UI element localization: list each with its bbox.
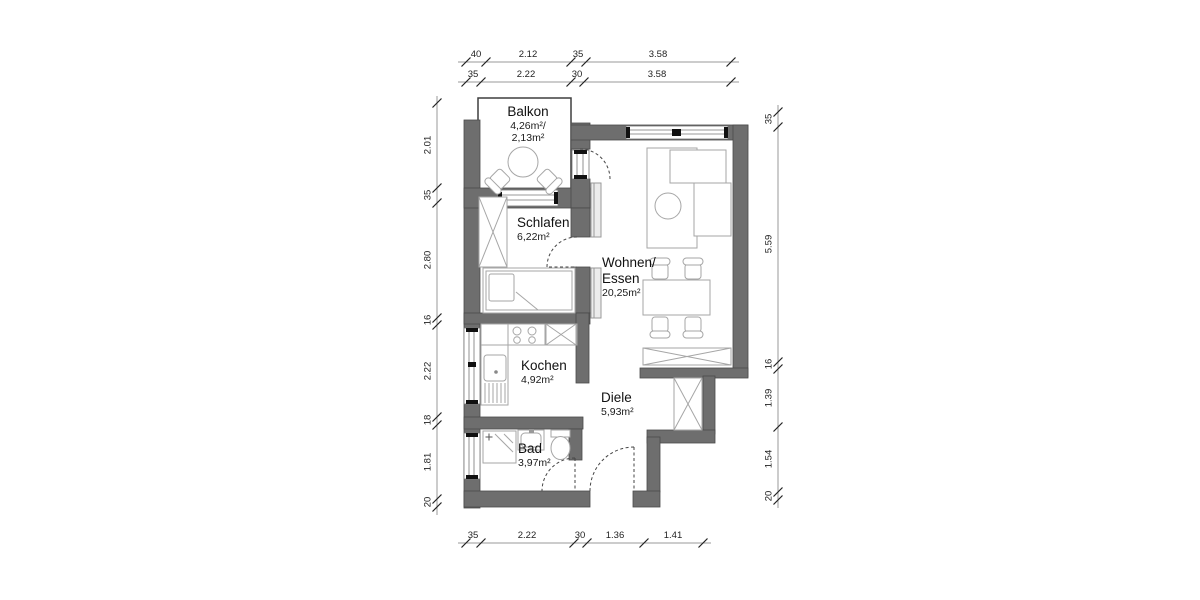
shower-symbol <box>483 431 516 463</box>
room-area: 3,97m² <box>518 457 551 469</box>
room-label-balkon: Balkon 4,26m²/ 2,13m² <box>478 104 578 145</box>
dim-label: 5.59 <box>764 235 775 254</box>
dining-chair-symbol <box>683 317 703 338</box>
dim-label: 1.54 <box>764 450 775 469</box>
dim-label: 35 <box>423 190 434 201</box>
dim-label: 18 <box>423 415 434 426</box>
balcony-table-symbol <box>508 147 538 177</box>
wall-niche-right <box>703 376 715 434</box>
window-kochen <box>464 328 480 404</box>
coffee-table-symbol <box>655 193 681 219</box>
shelf-strip <box>591 183 601 318</box>
stove-symbol <box>508 324 545 345</box>
room-area: 20,25m² <box>602 287 656 299</box>
room-name: Balkon <box>478 104 578 120</box>
dim-label: 20 <box>764 491 775 502</box>
wardrobe-diele-symbol <box>674 378 702 430</box>
wall-bottom-left <box>464 491 590 507</box>
wc-symbol <box>551 430 570 460</box>
balcony-door-glass <box>572 150 589 179</box>
dim-label: 35 <box>468 530 479 541</box>
room-area: 6,22m² <box>517 231 570 243</box>
fridge-symbol <box>546 324 576 345</box>
room-label-wohnen-essen: Wohnen/ Essen 20,25m² <box>602 255 656 299</box>
wall-kochen-right <box>576 313 589 383</box>
room-name: Bad <box>518 441 551 457</box>
wall-kochen-bad <box>464 417 583 429</box>
dim-label: 16 <box>764 359 775 370</box>
room-name: Diele <box>601 390 634 406</box>
room-name: Essen <box>602 271 656 287</box>
wall-right-exterior <box>733 125 748 377</box>
room-name: Wohnen/ <box>602 255 656 271</box>
dim-label: 1.81 <box>423 453 434 472</box>
dim-label: 30 <box>575 530 586 541</box>
dim-label: 2.22 <box>518 530 537 541</box>
wall-step-horizontal <box>640 368 748 378</box>
room-area: 2,13m² <box>478 132 578 144</box>
dim-label: 30 <box>572 69 583 80</box>
wall-bad-right <box>569 429 582 460</box>
wall-balcony-stub-bottom <box>571 179 590 208</box>
window-wohnen-top <box>626 126 728 139</box>
dim-label: 2.22 <box>423 362 434 381</box>
wall-entry-side <box>647 437 660 492</box>
dim-label: 16 <box>423 315 434 326</box>
floorplan-drawing <box>0 0 1200 600</box>
dim-label: 1.36 <box>606 530 625 541</box>
dim-label: 2.22 <box>517 69 536 80</box>
dim-label: 20 <box>423 497 434 508</box>
dim-label: 1.39 <box>764 389 775 408</box>
dim-label: 3.58 <box>648 69 667 80</box>
wardrobe-schlafen-symbol <box>479 197 507 267</box>
dim-label: 40 <box>471 49 482 60</box>
sideboard-symbol <box>643 348 731 365</box>
sink-symbol <box>484 355 506 381</box>
dim-label: 35 <box>764 114 775 125</box>
room-name: Schlafen <box>517 215 570 231</box>
room-area: 4,92m² <box>521 374 567 386</box>
dim-label: 2.80 <box>423 251 434 270</box>
dining-chair-symbol <box>683 258 703 279</box>
dim-label: 1.41 <box>664 530 683 541</box>
dim-label: 2.12 <box>519 49 538 60</box>
bed-symbol <box>483 268 575 313</box>
room-area: 5,93m² <box>601 406 634 418</box>
dining-chair-symbol <box>650 317 670 338</box>
room-area: 4,26m²/ <box>478 120 578 132</box>
dim-label: 35 <box>468 69 479 80</box>
room-name: Kochen <box>521 358 567 374</box>
wall-bottom-right-stub <box>633 491 660 507</box>
dim-label: 2.01 <box>423 136 434 155</box>
room-label-kochen: Kochen 4,92m² <box>521 358 567 386</box>
room-label-diele: Diele 5,93m² <box>601 390 634 418</box>
floorplan-canvas: Balkon 4,26m²/ 2,13m² Schlafen 6,22m² Wo… <box>0 0 1200 600</box>
dim-label: 35 <box>573 49 584 60</box>
wall-schlafen-kochen <box>464 313 590 324</box>
entry-door-swing <box>590 447 634 491</box>
window-bad <box>464 433 480 479</box>
wall-schlafen-wohnen-upper <box>571 208 590 237</box>
room-label-bad: Bad 3,97m² <box>518 441 551 469</box>
dim-label: 3.58 <box>649 49 668 60</box>
room-label-schlafen: Schlafen 6,22m² <box>517 215 570 243</box>
